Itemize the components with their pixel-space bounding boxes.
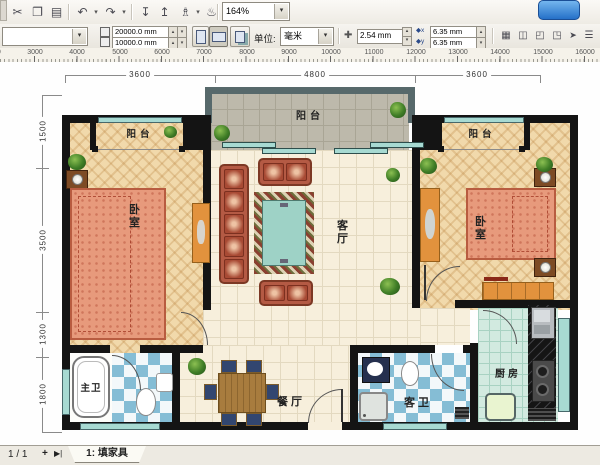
lamp-icon xyxy=(72,174,83,185)
zoom-combo-caret[interactable]: ▾ xyxy=(274,4,288,19)
vent-grate[interactable] xyxy=(528,408,556,421)
quilt-line xyxy=(78,196,131,332)
plant-icon[interactable] xyxy=(68,154,86,170)
window-left-wall[interactable] xyxy=(62,369,70,415)
clipped-icon[interactable] xyxy=(0,0,7,21)
dimension-tick xyxy=(36,312,49,313)
toolbar-separator xyxy=(492,28,494,44)
wall-segment[interactable] xyxy=(70,345,110,353)
drawing-canvas[interactable]: 阳台 阳台 阳台 卧室 卧室 客厅 餐厅 主卫 客卫 厨房 3600 4800 … xyxy=(0,62,600,445)
window-right-wall[interactable] xyxy=(558,318,570,412)
wall-segment[interactable] xyxy=(350,345,435,353)
dimension-tick xyxy=(65,75,66,83)
property-bar: ▾ 20000.0 mm 10000.0 mm ▴ ▾ ▴ ▾ 单位: 毫米 ▾… xyxy=(0,24,600,49)
room-label-balcony-right[interactable]: 阳台 xyxy=(440,126,524,140)
portrait-button[interactable] xyxy=(192,26,209,47)
sink-basin xyxy=(534,310,550,322)
page-width-icon xyxy=(100,27,110,37)
wall-segment[interactable] xyxy=(183,115,211,150)
shower-tray[interactable] xyxy=(359,392,388,421)
all-pages-icon xyxy=(235,31,245,43)
window-bottom-guest-bath[interactable] xyxy=(383,423,447,430)
sofa-bottom[interactable] xyxy=(259,280,313,306)
dining-table[interactable] xyxy=(218,373,266,413)
page-preset-combo[interactable]: ▾ xyxy=(2,27,88,46)
floor-grate[interactable] xyxy=(455,407,469,419)
ruler-label: 14000 xyxy=(490,49,509,56)
sofa-cushion xyxy=(224,169,244,189)
lamp-icon xyxy=(540,172,551,183)
plant-icon[interactable] xyxy=(164,126,177,138)
wardrobe-left[interactable] xyxy=(192,203,210,263)
dimension-tick xyxy=(36,168,49,169)
ruler-label: 12000 xyxy=(406,49,425,56)
quilt-line xyxy=(512,196,548,252)
treat-as-filled-icon[interactable]: ➤ xyxy=(566,26,580,45)
ruler-label: 6000 xyxy=(154,49,170,56)
snap-to-grid-icon[interactable]: ▦ xyxy=(498,26,514,45)
portrait-icon xyxy=(196,30,206,44)
redo-dropdown-caret[interactable]: ▾ xyxy=(120,8,128,16)
ruler-label: 16000 xyxy=(575,49,594,56)
toolbar-separator xyxy=(131,4,133,20)
standard-toolbar: ✂ ❐ ▤ ↶ ▾ ↷ ▾ ↧ ↥ ♗ ▾ ♨ 164% ▾ xyxy=(0,0,600,25)
lamp-icon xyxy=(540,262,551,273)
bed-left[interactable] xyxy=(70,188,166,340)
wall-bedroom-right[interactable] xyxy=(412,150,420,300)
plant-icon[interactable] xyxy=(380,278,400,295)
center-balcony-wall-top[interactable] xyxy=(205,87,415,94)
wall-segment[interactable] xyxy=(412,300,420,308)
wardrobe-contents xyxy=(197,220,205,244)
dimension-tick xyxy=(540,75,541,83)
ruler-label: 2000 xyxy=(0,49,1,56)
units-combo-caret[interactable]: ▾ xyxy=(318,29,332,44)
stove[interactable] xyxy=(532,360,555,402)
entrance-door-leaf[interactable] xyxy=(341,389,343,422)
paste-icon[interactable]: ▤ xyxy=(47,2,66,21)
dimension-label[interactable]: 1500 xyxy=(39,117,48,145)
ruler-label: 7000 xyxy=(196,49,212,56)
preset-combo-caret[interactable]: ▾ xyxy=(72,29,86,44)
plant-icon[interactable] xyxy=(214,125,230,141)
page-indicator: 1 / 1 xyxy=(8,449,27,460)
page-navigation-bar: 1 / 1 + ▶| 1: 填家具 xyxy=(0,445,600,465)
bedroom-right-door-leaf[interactable] xyxy=(424,265,426,300)
landscape-icon xyxy=(212,32,226,42)
dimension-label[interactable]: 3600 xyxy=(463,70,491,79)
toolbar-separator xyxy=(68,4,70,20)
toolbar-separator xyxy=(338,28,340,44)
application-launcher-icon[interactable]: ♗ xyxy=(176,2,195,21)
undo-icon[interactable]: ↶ xyxy=(73,2,92,21)
sofa-cushion xyxy=(224,191,244,211)
sofa-cushion xyxy=(224,214,244,234)
room-label-master-bath[interactable]: 主卫 xyxy=(74,380,108,394)
app-window: { "toolbar": { "zoom_level": "164%", "ca… xyxy=(0,0,600,464)
dimension-label[interactable]: 3600 xyxy=(126,70,154,79)
zoom-level-combo[interactable]: 164% ▾ xyxy=(222,2,290,21)
wall-segment[interactable] xyxy=(350,353,358,422)
units-combo[interactable]: 毫米 ▾ xyxy=(280,27,334,46)
dimension-label[interactable]: 4800 xyxy=(301,70,329,79)
snap-to-objects-icon[interactable]: ◰ xyxy=(532,26,548,45)
sink-drainer xyxy=(534,325,550,334)
room-label-dining[interactable]: 餐厅 xyxy=(272,393,310,409)
ruler-label: 5000 xyxy=(112,49,128,56)
duplicate-x-icon: ◆x xyxy=(416,26,424,34)
dining-chair[interactable] xyxy=(221,360,237,373)
sofa-cushion xyxy=(286,163,307,181)
plant-icon[interactable] xyxy=(386,168,400,182)
dimension-label[interactable]: 3500 xyxy=(39,226,48,254)
sofa-cushion xyxy=(263,163,284,181)
wall-kitchen[interactable] xyxy=(470,343,478,422)
dimension-tick xyxy=(42,95,62,96)
bathroom-sink[interactable] xyxy=(156,373,173,392)
vanity-counter[interactable] xyxy=(362,357,390,383)
sofa-cushion xyxy=(224,236,244,256)
balcony-boundary-line xyxy=(444,149,519,150)
dining-chair[interactable] xyxy=(204,384,217,400)
entrance-opening xyxy=(308,422,342,430)
balcony-boundary-line xyxy=(98,149,179,150)
apply-to-all-pages-button[interactable] xyxy=(230,26,250,47)
window-bottom-master-bath[interactable] xyxy=(80,423,160,430)
redo-icon[interactable]: ↷ xyxy=(101,2,120,21)
nudge-spinner-down[interactable]: ▾ xyxy=(402,36,412,46)
window-right-balcony[interactable] xyxy=(444,117,524,123)
nightstand[interactable] xyxy=(66,170,88,189)
sofa-cushion xyxy=(287,285,308,301)
dining-chair[interactable] xyxy=(246,360,262,373)
basin xyxy=(367,362,383,376)
ruler-label: 3000 xyxy=(27,49,43,56)
page-height-icon xyxy=(100,37,110,47)
wall-tick xyxy=(179,146,185,152)
last-page-button[interactable]: ▶| xyxy=(54,449,62,458)
ruler-label: 13000 xyxy=(448,49,467,56)
nudge-offset-icon: ✚ xyxy=(344,30,352,41)
property-bar-toggle-icon[interactable]: ☰ xyxy=(582,26,596,45)
copy-icon[interactable]: ❐ xyxy=(28,2,47,21)
rug[interactable] xyxy=(254,192,314,274)
dimension-label[interactable]: 1300 xyxy=(39,320,48,348)
toolbar-separator xyxy=(217,4,219,20)
burner-icon xyxy=(536,383,549,396)
kitchen-table[interactable] xyxy=(485,393,516,421)
room-label-guest-bath[interactable]: 客卫 xyxy=(399,394,437,410)
room-label-bedroom-left[interactable]: 卧室 xyxy=(128,204,141,230)
sofa-cushion xyxy=(224,259,244,279)
toilet[interactable] xyxy=(401,361,419,386)
sliding-door-panel[interactable] xyxy=(334,148,388,154)
room-label-bedroom-right[interactable]: 卧室 xyxy=(474,216,487,242)
import-icon[interactable]: ↧ xyxy=(136,2,155,21)
dimension-tick xyxy=(415,75,416,83)
launcher-dropdown-caret[interactable]: ▾ xyxy=(194,8,202,16)
wardrobe-mirror xyxy=(425,209,435,239)
ruler-label: 8000 xyxy=(239,49,255,56)
plant-icon[interactable] xyxy=(390,102,406,118)
window-blue-button[interactable] xyxy=(538,0,580,20)
sofa-cushion xyxy=(264,285,285,301)
table-item xyxy=(280,259,288,263)
sliding-door-panel[interactable] xyxy=(262,148,316,154)
ruler-label: 15000 xyxy=(533,49,552,56)
wall-segment[interactable] xyxy=(172,353,180,422)
window-left-balcony[interactable] xyxy=(98,117,182,123)
room-label-kitchen[interactable]: 厨房 xyxy=(487,365,529,380)
dimension-tick xyxy=(42,432,62,433)
undo-dropdown-caret[interactable]: ▾ xyxy=(92,8,100,16)
wall-tick xyxy=(519,146,525,152)
ruler-label: 4000 xyxy=(69,49,85,56)
export-icon[interactable]: ↥ xyxy=(155,2,174,21)
coffee-table[interactable] xyxy=(262,200,306,266)
room-label-balcony-center[interactable]: 阳台 xyxy=(265,107,355,122)
dimension-tick xyxy=(36,357,49,358)
snap-to-guidelines-icon[interactable]: ◫ xyxy=(515,26,531,45)
nightstand[interactable] xyxy=(534,258,556,277)
horizontal-ruler[interactable]: 2000 3000 4000 5000 6000 7000 8000 9000 … xyxy=(0,48,600,63)
duplicate-y-icon: ◆y xyxy=(416,37,424,45)
dining-chair[interactable] xyxy=(246,413,262,426)
sofa-top[interactable] xyxy=(258,158,312,186)
burner-icon xyxy=(536,365,549,378)
dimension-label[interactable]: 1800 xyxy=(39,380,48,408)
plant-icon[interactable] xyxy=(420,158,437,174)
kitchen-sink[interactable] xyxy=(531,307,555,339)
wardrobe-right[interactable] xyxy=(420,188,440,262)
landscape-button[interactable] xyxy=(209,26,228,47)
dresser-item xyxy=(484,277,508,281)
units-label: 单位: xyxy=(254,31,276,45)
wall-segment[interactable] xyxy=(140,345,203,353)
sofa-long[interactable] xyxy=(219,164,249,284)
ruler-label: 11000 xyxy=(365,49,384,56)
nudge-offset-field[interactable]: 2.54 mm xyxy=(357,29,405,44)
dresser[interactable] xyxy=(482,282,554,300)
dining-chair[interactable] xyxy=(221,413,237,426)
toilet[interactable] xyxy=(136,388,156,416)
dynamic-guides-icon[interactable]: ◳ xyxy=(549,26,565,45)
drain-icon xyxy=(363,414,366,417)
table-item xyxy=(280,203,288,207)
add-page-button[interactable]: + xyxy=(42,448,48,459)
tab-page-1[interactable]: 1: 填家具 xyxy=(68,446,146,463)
cut-icon[interactable]: ✂ xyxy=(8,2,27,21)
plant-icon[interactable] xyxy=(536,157,553,172)
ruler-label: 9000 xyxy=(281,49,297,56)
room-label-living[interactable]: 客厅 xyxy=(336,220,349,246)
plant-icon[interactable] xyxy=(188,358,206,375)
ruler-label: 10000 xyxy=(321,49,340,56)
dimension-tick xyxy=(215,75,216,83)
